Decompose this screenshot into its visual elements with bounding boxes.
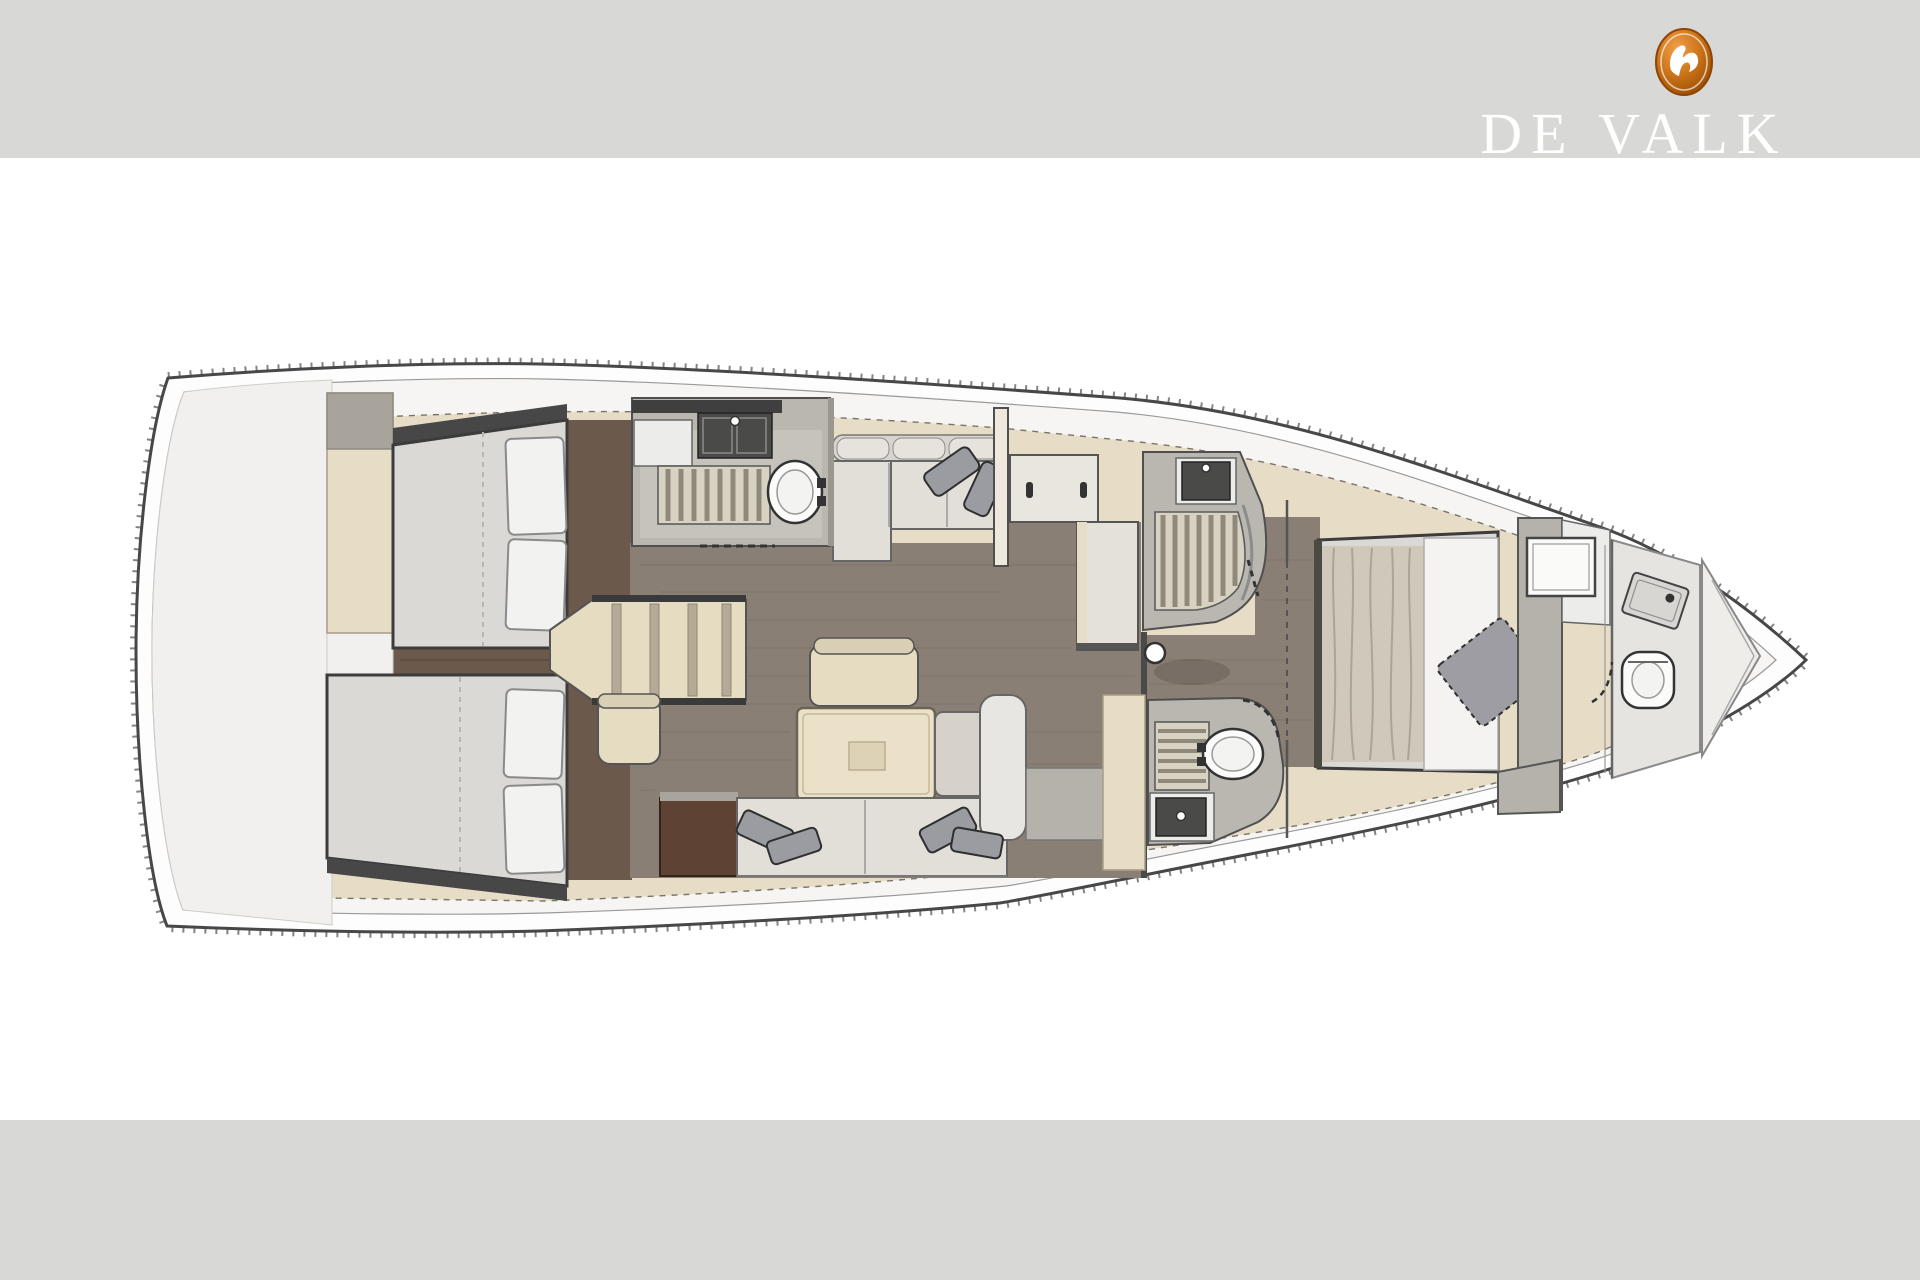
mirror — [1527, 538, 1595, 596]
yacht-floorplan-image: DE VALK — [0, 0, 1920, 1280]
mast-post — [1145, 643, 1165, 663]
faucet-icon — [1202, 464, 1210, 472]
pillow — [503, 784, 564, 874]
companionway-stairs — [550, 595, 746, 705]
brand-logo-text: DE VALK — [1480, 101, 1787, 166]
stool — [598, 694, 660, 764]
screenshot-canvas: DE VALK — [0, 0, 1920, 1280]
bow-head — [1592, 540, 1760, 778]
sink — [1176, 458, 1236, 504]
anchor-locker — [1702, 560, 1760, 756]
chair — [810, 638, 918, 706]
saloon-table — [797, 708, 935, 800]
handle — [1080, 482, 1087, 498]
pillow — [505, 437, 566, 535]
partition-wall — [828, 398, 834, 546]
cabinet — [634, 420, 692, 466]
handle — [1026, 482, 1033, 498]
shower-grate — [1155, 722, 1209, 790]
counter — [632, 400, 782, 413]
faucet-icon — [731, 417, 740, 426]
settee-chaise — [833, 461, 891, 561]
pillow — [505, 539, 566, 631]
aft-cabin-starboard — [327, 675, 567, 901]
headboard — [1314, 540, 1322, 768]
bottom-bar — [0, 1120, 1920, 1280]
sink — [698, 413, 772, 458]
toilet — [1622, 652, 1674, 708]
cockpit-stern-deck — [152, 380, 332, 925]
white-gap — [327, 630, 393, 675]
partition — [994, 408, 1008, 566]
sink — [1150, 793, 1214, 841]
faucet-icon — [1177, 812, 1186, 821]
shower-grate — [658, 466, 770, 524]
sofa-corner-arm — [980, 695, 1026, 840]
fridge-cabinet — [660, 798, 738, 876]
aft-cabin-port — [327, 393, 567, 648]
day-head — [632, 398, 830, 546]
pillow — [503, 689, 564, 779]
vanity-top — [327, 393, 393, 449]
side-locker-top — [1026, 768, 1104, 840]
bulkhead-cream — [1103, 695, 1145, 870]
